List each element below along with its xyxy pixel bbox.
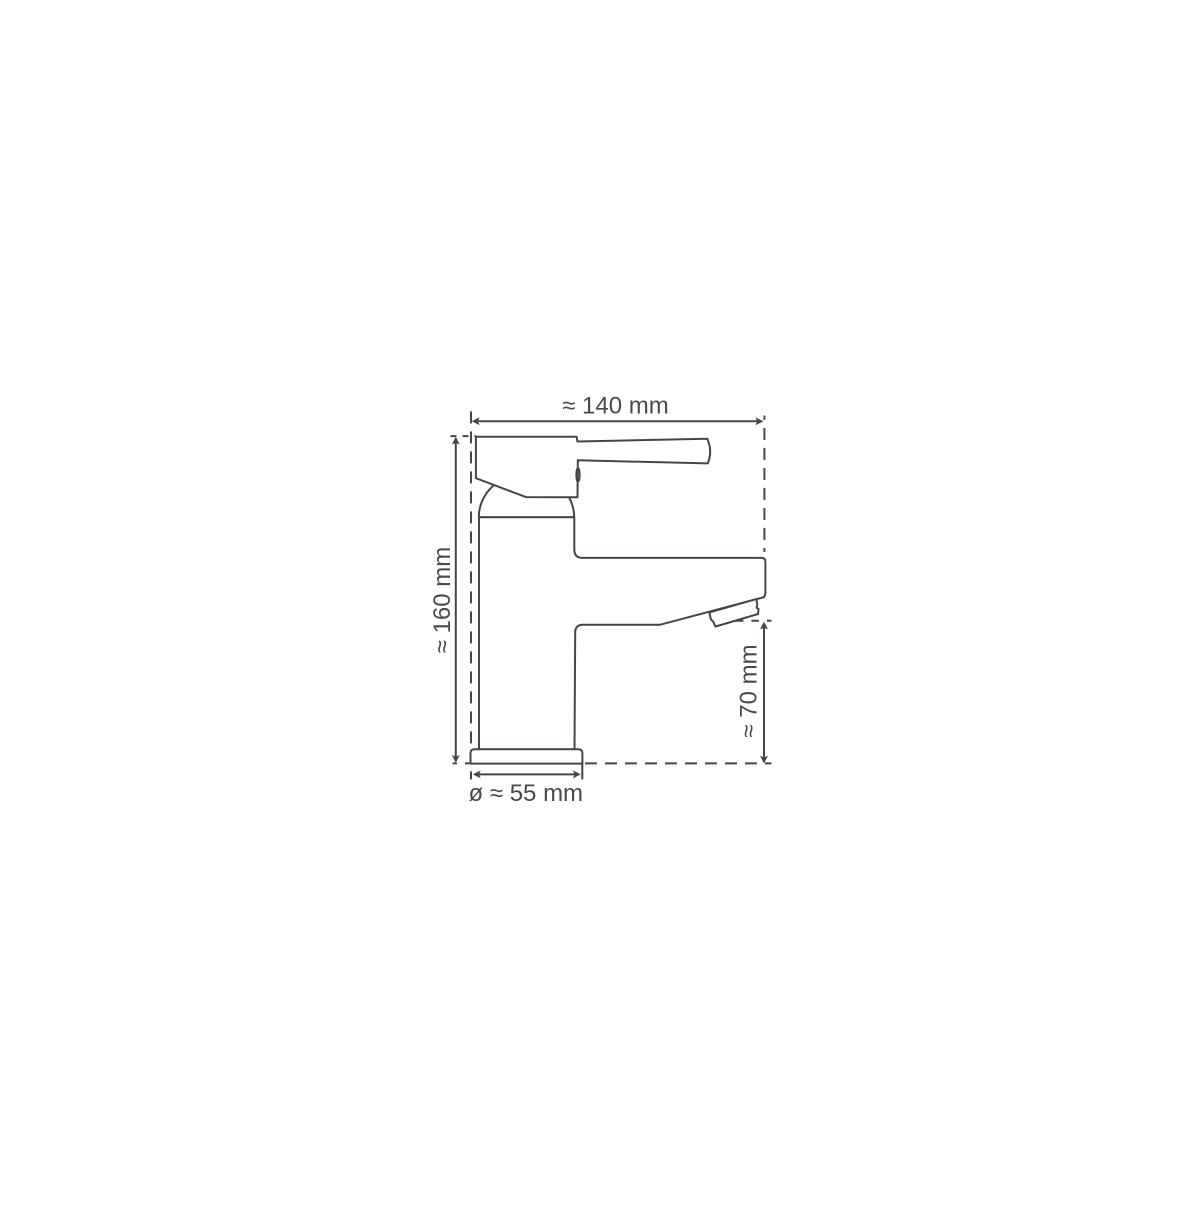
svg-text:≈ 70 mm: ≈ 70 mm	[735, 644, 762, 737]
svg-text:≈ 160 mm: ≈ 160 mm	[429, 547, 456, 654]
svg-text:ø ≈ 55 mm: ø ≈ 55 mm	[469, 780, 584, 807]
svg-text:≈ 140 mm: ≈ 140 mm	[562, 393, 669, 420]
